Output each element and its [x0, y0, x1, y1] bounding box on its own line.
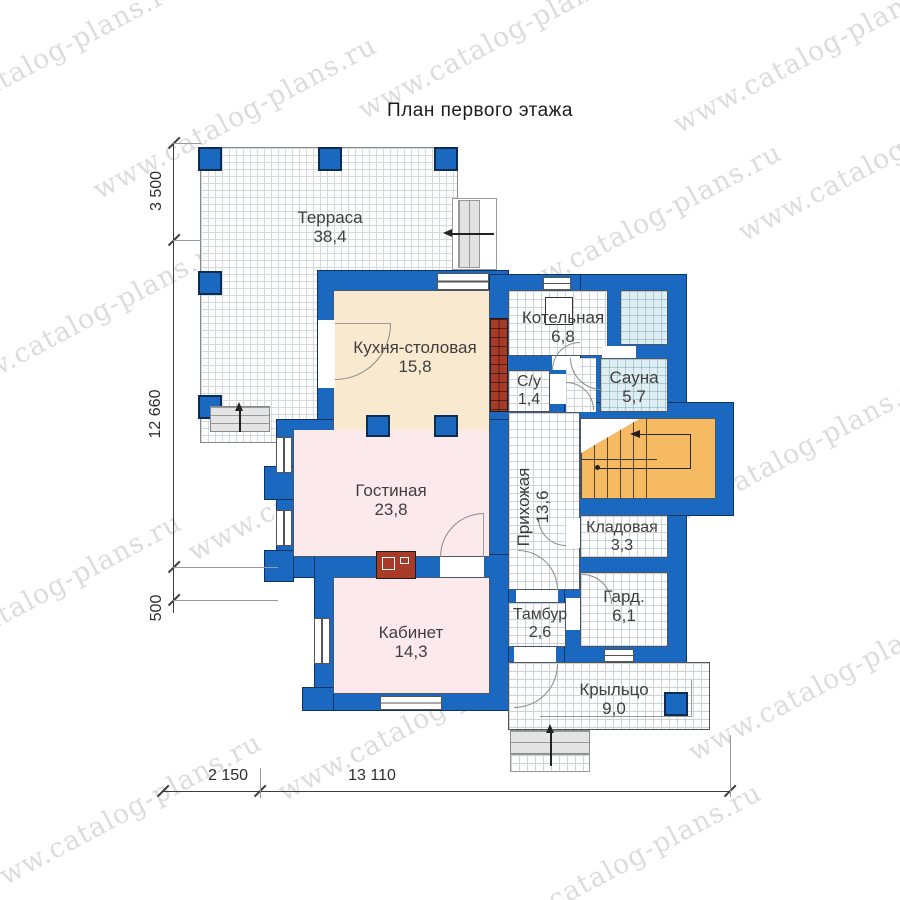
extension-line	[173, 240, 201, 241]
room-area: 23,8	[355, 500, 426, 519]
wall-pilaster	[303, 688, 333, 710]
fireplace-detail	[400, 557, 409, 564]
room-name: Гостиная	[355, 481, 426, 500]
room-area: 1,4	[517, 391, 541, 409]
dim-label: 3 500	[148, 171, 166, 211]
extension-line	[173, 567, 278, 568]
dim-label: 13 110	[348, 767, 396, 785]
steps-arrow	[239, 408, 241, 432]
room-label-vestibule: Тамбур 2,6	[513, 606, 567, 642]
room-label-terrace: Терраса 38,4	[297, 208, 362, 246]
door-opening	[550, 374, 566, 404]
room-area: 14,3	[379, 642, 444, 661]
wall-pilaster	[265, 551, 293, 581]
porch-pillar	[664, 692, 688, 716]
window	[543, 277, 571, 290]
room-name: Гард.	[603, 587, 644, 606]
window	[276, 437, 292, 473]
stair-walkline	[640, 434, 690, 435]
door-leaf	[335, 323, 391, 324]
floor-plan-canvas: www.catalog-plans.ru www.catalog-plans.r…	[0, 0, 900, 900]
room-label-kitchen: Кухня-столовая 15,8	[352, 338, 478, 376]
porch-arrow-head	[546, 724, 554, 733]
floor-sauna	[620, 290, 668, 345]
room-name: Котельная	[522, 308, 604, 327]
door-opening	[566, 518, 580, 548]
chimney	[490, 318, 508, 412]
watermark: www.catalog-plans.ru	[683, 592, 900, 768]
stair-arrow-head	[630, 430, 640, 438]
room-label-wc: С/у 1,4	[517, 373, 541, 409]
door-opening	[602, 346, 636, 358]
page-title: План первого этажа	[387, 100, 573, 122]
window	[276, 510, 292, 546]
room-area: 5,7	[609, 387, 658, 406]
room-label-office: Кабинет 14,3	[379, 623, 444, 661]
watermark: www.catalog-plans.ru	[0, 232, 232, 408]
dimension-line-left	[173, 143, 174, 613]
stair-walkline	[598, 468, 690, 469]
room-area: 6,8	[522, 327, 604, 346]
room-label-porch: Крыльцо 9,0	[579, 680, 648, 718]
door-opening	[440, 557, 484, 577]
room-area: 13,6	[533, 468, 552, 547]
room-area: 15,8	[352, 357, 478, 376]
extension-line	[260, 768, 261, 798]
dim-label: 500	[148, 595, 166, 622]
dimension-line-bottom	[163, 791, 730, 792]
room-area: 38,4	[297, 227, 362, 246]
stair-walkline-start	[595, 465, 600, 470]
porch-edge-line	[691, 680, 692, 717]
door-opening	[318, 320, 335, 388]
watermark: www.catalog-plans.ru	[733, 72, 900, 248]
room-name: Крыльцо	[579, 680, 648, 699]
watermark: www.catalog-plans.ru	[668, 0, 900, 140]
door-leaf	[483, 513, 484, 557]
room-label-living: Гостиная 23,8	[355, 481, 426, 519]
door-opening	[514, 647, 556, 662]
steps-arrow-head	[443, 229, 452, 237]
dim-label: 2 150	[208, 767, 248, 785]
watermark: www.catalog-plans.ru	[0, 727, 267, 900]
room-name: Кабинет	[379, 623, 444, 642]
extension-line	[173, 143, 201, 144]
room-label-hall: Прихожая 13,6	[514, 468, 552, 547]
door-opening	[566, 598, 580, 630]
room-area: 2,6	[513, 624, 567, 642]
room-label-storage: Кладовая 3,3	[586, 519, 658, 555]
steps-arrow	[450, 233, 494, 235]
room-area: 9,0	[579, 699, 648, 718]
room-area: 3,3	[586, 537, 658, 555]
room-label-wardrobe: Гард. 6,1	[603, 587, 644, 625]
watermark: www.catalog-plans.ru	[0, 0, 187, 148]
kitchen-pillar	[366, 415, 390, 437]
stair-walkline	[690, 434, 691, 469]
kitchen-pillar	[434, 415, 458, 437]
terrace-pillar	[198, 271, 222, 295]
extension-line	[730, 735, 731, 797]
extension-line	[173, 600, 278, 601]
room-name: Кладовая	[586, 519, 658, 537]
room-name: С/у	[517, 373, 541, 391]
room-name: Прихожая	[514, 468, 533, 547]
terrace-pillar	[434, 147, 458, 171]
room-name: Тамбур	[513, 606, 567, 624]
terrace-pillar	[318, 147, 342, 171]
room-area: 6,1	[603, 606, 644, 625]
porch-arrow	[550, 730, 552, 766]
stair-run-divider	[581, 459, 657, 460]
window	[314, 618, 330, 664]
window	[437, 273, 489, 290]
room-label-sauna: Сауна 5,7	[609, 368, 658, 406]
door-opening	[516, 590, 558, 602]
room-name: Терраса	[297, 208, 362, 227]
window	[380, 696, 442, 710]
terrace-pillar	[198, 147, 222, 171]
room-name: Сауна	[609, 368, 658, 387]
room-name: Кухня-столовая	[352, 338, 478, 357]
fireplace-detail	[382, 557, 395, 570]
window	[604, 649, 634, 662]
steps-arrow-head	[235, 402, 243, 411]
dim-label: 12 660	[147, 390, 165, 439]
room-label-boiler: Котельная 6,8	[522, 308, 604, 346]
